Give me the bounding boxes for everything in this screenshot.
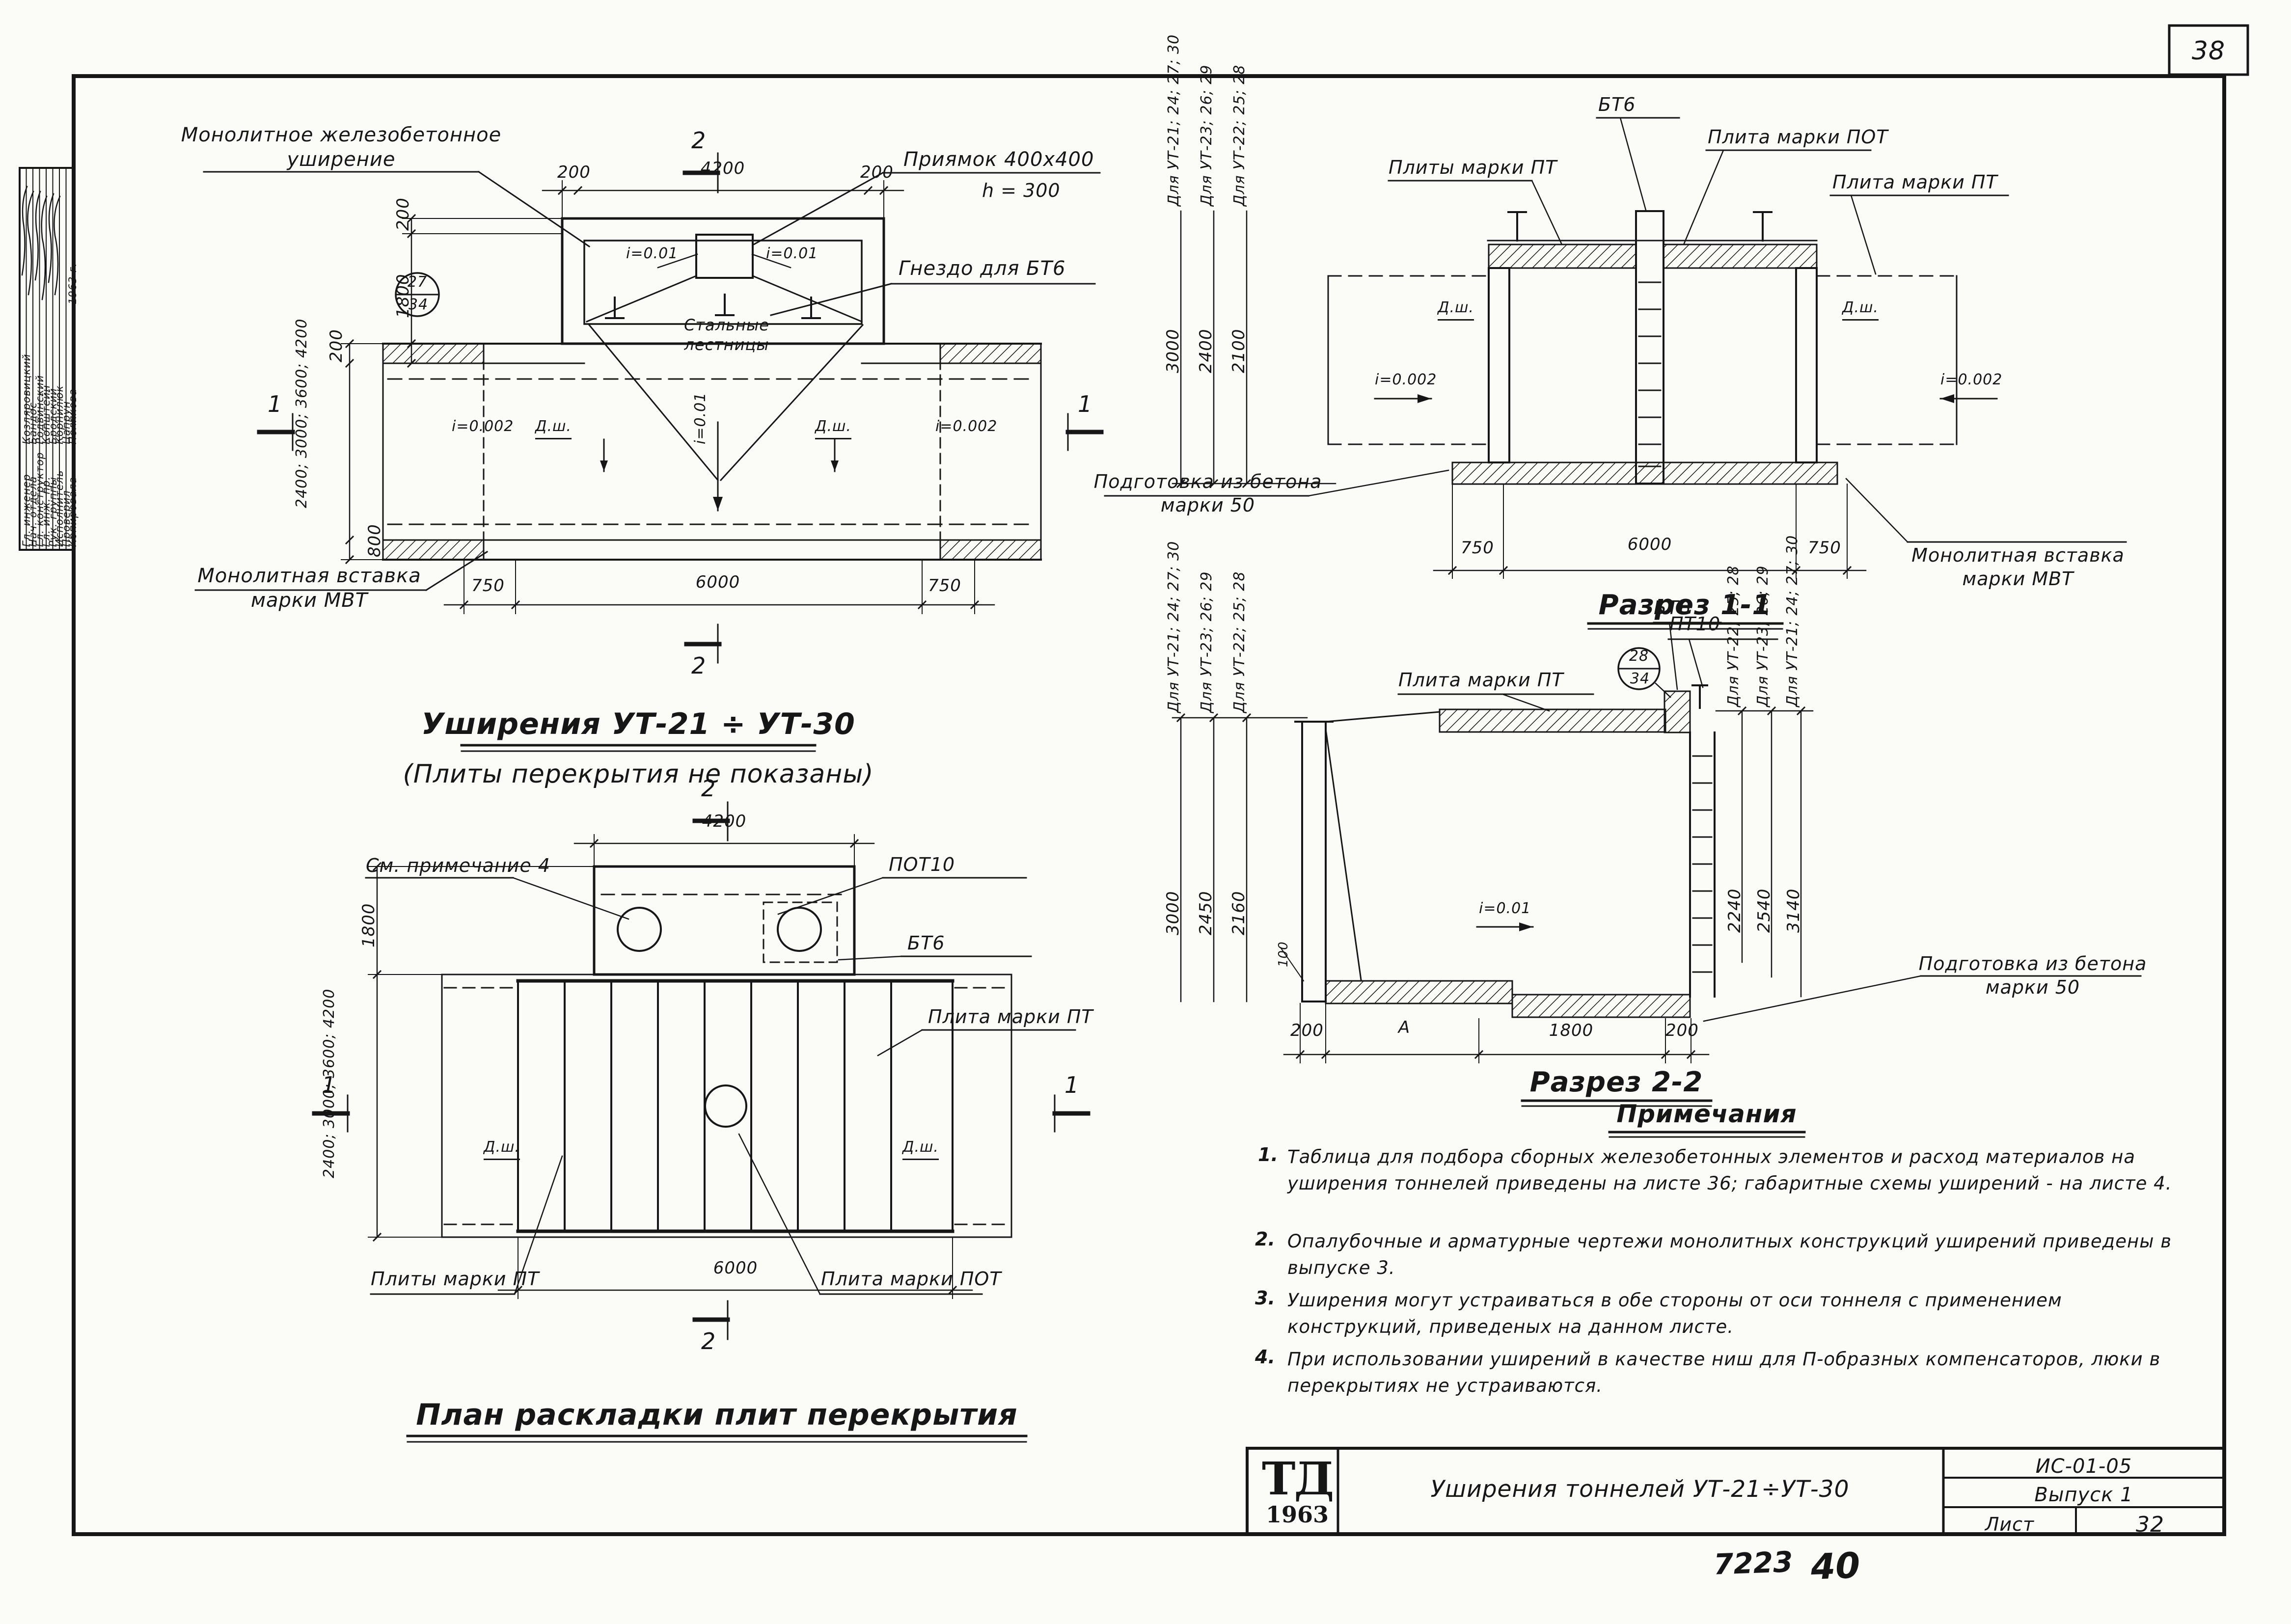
callout-monolithic-widening: Монолитное железобетонное уширение bbox=[181, 123, 501, 172]
note-number: 3. bbox=[1255, 1287, 1275, 1309]
dim-4200: 4200 bbox=[701, 158, 745, 179]
dim-200: 200 bbox=[1290, 1020, 1324, 1041]
dim-200: 200 bbox=[1665, 1020, 1699, 1041]
logo-year: 1963 bbox=[1266, 1501, 1329, 1528]
titleblock-code: ИС-01-05 bbox=[2036, 1454, 2132, 1479]
logo-td: ТД bbox=[1262, 1452, 1333, 1505]
for-types-label: Для УТ-21; 24; 27; 30 bbox=[1783, 535, 1802, 707]
note-number: 4. bbox=[1255, 1346, 1275, 1368]
callout-socket-bt6: Гнездо для БТ6 bbox=[899, 256, 1065, 281]
callout-monolithic-insert: Монолитная вставка марки МВТ bbox=[1911, 544, 2125, 591]
dim-4200: 4200 bbox=[702, 811, 747, 832]
label-steel-ladders: Стальные лестницы bbox=[684, 315, 769, 354]
section-marker-2: 2 bbox=[701, 1327, 716, 1356]
dim-750: 750 bbox=[928, 575, 961, 596]
callout-slabs-pt: Плиты марки ПТ bbox=[1389, 156, 1557, 180]
dim-1800-left: 1800 bbox=[393, 273, 414, 318]
for-types-label: Для УТ-21; 24; 27; 30 bbox=[1165, 541, 1183, 713]
dim-2100: 2100 bbox=[1228, 328, 1250, 373]
dim-200-left: 200 bbox=[393, 197, 414, 231]
note-text: Опалубочные и арматурные чертежи монолит… bbox=[1287, 1228, 2201, 1281]
for-types-label: Для УТ-23; 26; 29 bbox=[1198, 65, 1216, 206]
dim-200-left: 200 bbox=[326, 329, 347, 362]
for-types-label: Для УТ-22; 25; 28 bbox=[1230, 65, 1249, 206]
dim-1800: 1800 bbox=[1549, 1020, 1594, 1041]
dim-2160: 2160 bbox=[1228, 891, 1250, 935]
callout-slab-pot: Плита марки ПОТ bbox=[1708, 126, 1888, 149]
callout-see-note-4: См. примечание 4 bbox=[366, 854, 550, 878]
section-marker-1: 1 bbox=[268, 390, 282, 419]
dim-1800-left: 1800 bbox=[358, 903, 380, 947]
dim-2540: 2540 bbox=[1754, 888, 1775, 933]
dim-800-left: 800 bbox=[364, 524, 385, 557]
slope-label: i=0.01 bbox=[626, 244, 678, 263]
for-types-label: Для УТ-22; 25; 28 bbox=[1724, 566, 1743, 707]
section-marker-1: 1 bbox=[1064, 1071, 1079, 1100]
dim-6000: 6000 bbox=[1628, 534, 1672, 555]
stamp-name: Полякова bbox=[67, 389, 79, 444]
dim-2240: 2240 bbox=[1724, 888, 1746, 933]
page-number: 38 bbox=[2192, 35, 2225, 67]
callout-concrete-prep: Подготовка из бетона марки 50 bbox=[1919, 952, 2147, 999]
detail-ref-bottom: 34 bbox=[1630, 670, 1650, 688]
titleblock-sheet-label: Лист bbox=[1985, 1513, 2034, 1537]
dim-6000: 6000 bbox=[713, 1258, 758, 1279]
blueprint-sheet: 38 7223 40 Гл. инженер Нач. отдела Гл. к… bbox=[0, 0, 2291, 1624]
slope-label: i=0.01 bbox=[1479, 899, 1531, 918]
slope-label-axis: i=0.01 bbox=[691, 392, 710, 444]
handwritten-code: 7223 bbox=[1713, 1545, 1794, 1581]
for-types-label: Для УТ-23; 26; 29 bbox=[1754, 566, 1773, 707]
section-marker-2: 2 bbox=[701, 775, 716, 803]
handwritten-number: 40 bbox=[1810, 1544, 1861, 1587]
for-types-label: Для УТ-23; 26; 29 bbox=[1198, 571, 1216, 713]
dim-750: 750 bbox=[471, 575, 505, 596]
section-marker-2: 2 bbox=[691, 652, 706, 680]
dim-3140: 3140 bbox=[1783, 888, 1804, 933]
stamp-role: Копировала bbox=[67, 477, 79, 547]
callout-slabs-pt: Плиты марки ПТ bbox=[371, 1268, 539, 1291]
dim-200: 200 bbox=[557, 162, 591, 183]
deformation-seam-label: Д.ш. bbox=[1842, 298, 1879, 321]
callout-slab-pt: Плита марки ПТ bbox=[1398, 669, 1564, 692]
dim-200: 200 bbox=[860, 162, 894, 183]
note-text: Уширения могут устраиваться в обе сторон… bbox=[1287, 1287, 2201, 1340]
dim-6000: 6000 bbox=[696, 572, 740, 593]
callout-pot10: ПОТ10 bbox=[889, 853, 955, 877]
deformation-seam-label: Д.ш. bbox=[484, 1138, 520, 1160]
dim-A: А bbox=[1398, 1017, 1410, 1038]
slope-label: i=0.002 bbox=[1375, 371, 1437, 389]
plan1-subtitle: (Плиты перекрытия не показаны) bbox=[403, 758, 873, 790]
slope-label: i=0.002 bbox=[935, 417, 997, 436]
dim-2400: 2400 bbox=[1196, 328, 1217, 373]
dim-100: 100 bbox=[1276, 941, 1292, 967]
deformation-seam-label: Д.ш. bbox=[815, 417, 851, 439]
note-text: При использовании уширений в качестве ни… bbox=[1287, 1346, 2201, 1399]
detail-ref-top: 28 bbox=[1629, 647, 1649, 666]
callout-pit-depth: h = 300 bbox=[982, 179, 1061, 203]
dim-750: 750 bbox=[1808, 538, 1841, 559]
note-number: 2. bbox=[1255, 1228, 1275, 1250]
callout-bt6: БТ6 bbox=[1598, 93, 1636, 117]
section-marker-1: 1 bbox=[1078, 390, 1092, 419]
stamp-year: 1963 г. bbox=[67, 263, 79, 304]
dim-750: 750 bbox=[1461, 538, 1494, 559]
note-text: Таблица для подбора сборных железобетонн… bbox=[1287, 1144, 2201, 1196]
callout-slab-pt: Плита марки ПТ bbox=[1832, 171, 1998, 194]
callout-slab-pt: Плита марки ПТ bbox=[928, 1005, 1093, 1029]
section-marker-2: 2 bbox=[691, 127, 706, 155]
dim-2450: 2450 bbox=[1196, 891, 1217, 935]
callout-monolithic-insert: Монолитная вставка марки МВТ bbox=[197, 564, 421, 613]
deformation-seam-label: Д.ш. bbox=[902, 1138, 939, 1160]
for-types-label: Для УТ-21; 24; 27; 30 bbox=[1165, 34, 1183, 206]
callout-slab-pot: Плита марки ПОТ bbox=[821, 1268, 1002, 1291]
callout-bt6: БТ6 bbox=[907, 932, 945, 955]
slope-label: i=0.01 bbox=[766, 244, 818, 263]
for-types-label: Для УТ-22; 25; 28 bbox=[1230, 571, 1249, 713]
titleblock-title: Уширения тоннелей УТ-21÷УТ-30 bbox=[1431, 1475, 1850, 1504]
plan2-title: План раскладки плит перекрытия bbox=[416, 1397, 1017, 1434]
callout-pt10: ПТ10 bbox=[1669, 613, 1720, 636]
dim-3000: 3000 bbox=[1163, 328, 1184, 373]
dim-tunnel-widths: 2400; 3000; 3600; 4200 bbox=[293, 319, 311, 508]
slope-label: i=0.002 bbox=[452, 417, 514, 436]
section2-title: Разрез 2-2 bbox=[1530, 1065, 1703, 1100]
callout-concrete-prep: Подготовка из бетона марки 50 bbox=[1094, 470, 1322, 517]
titleblock-sheet-number: 32 bbox=[2136, 1511, 2164, 1538]
callout-pit: Приямок 400x400 bbox=[903, 147, 1094, 172]
deformation-seam-label: Д.ш. bbox=[1438, 298, 1474, 321]
titleblock-issue: Выпуск 1 bbox=[2034, 1483, 2133, 1507]
note-number: 1. bbox=[1258, 1144, 1278, 1165]
deformation-seam-label: Д.ш. bbox=[535, 417, 572, 439]
dim-3000: 3000 bbox=[1163, 891, 1184, 935]
plan1-title: Уширения УТ-21 ÷ УТ-30 bbox=[421, 706, 855, 743]
section-marker-1: 1 bbox=[322, 1071, 336, 1100]
slope-label: i=0.002 bbox=[1940, 371, 2002, 389]
notes-heading: Примечания bbox=[1616, 1099, 1797, 1130]
